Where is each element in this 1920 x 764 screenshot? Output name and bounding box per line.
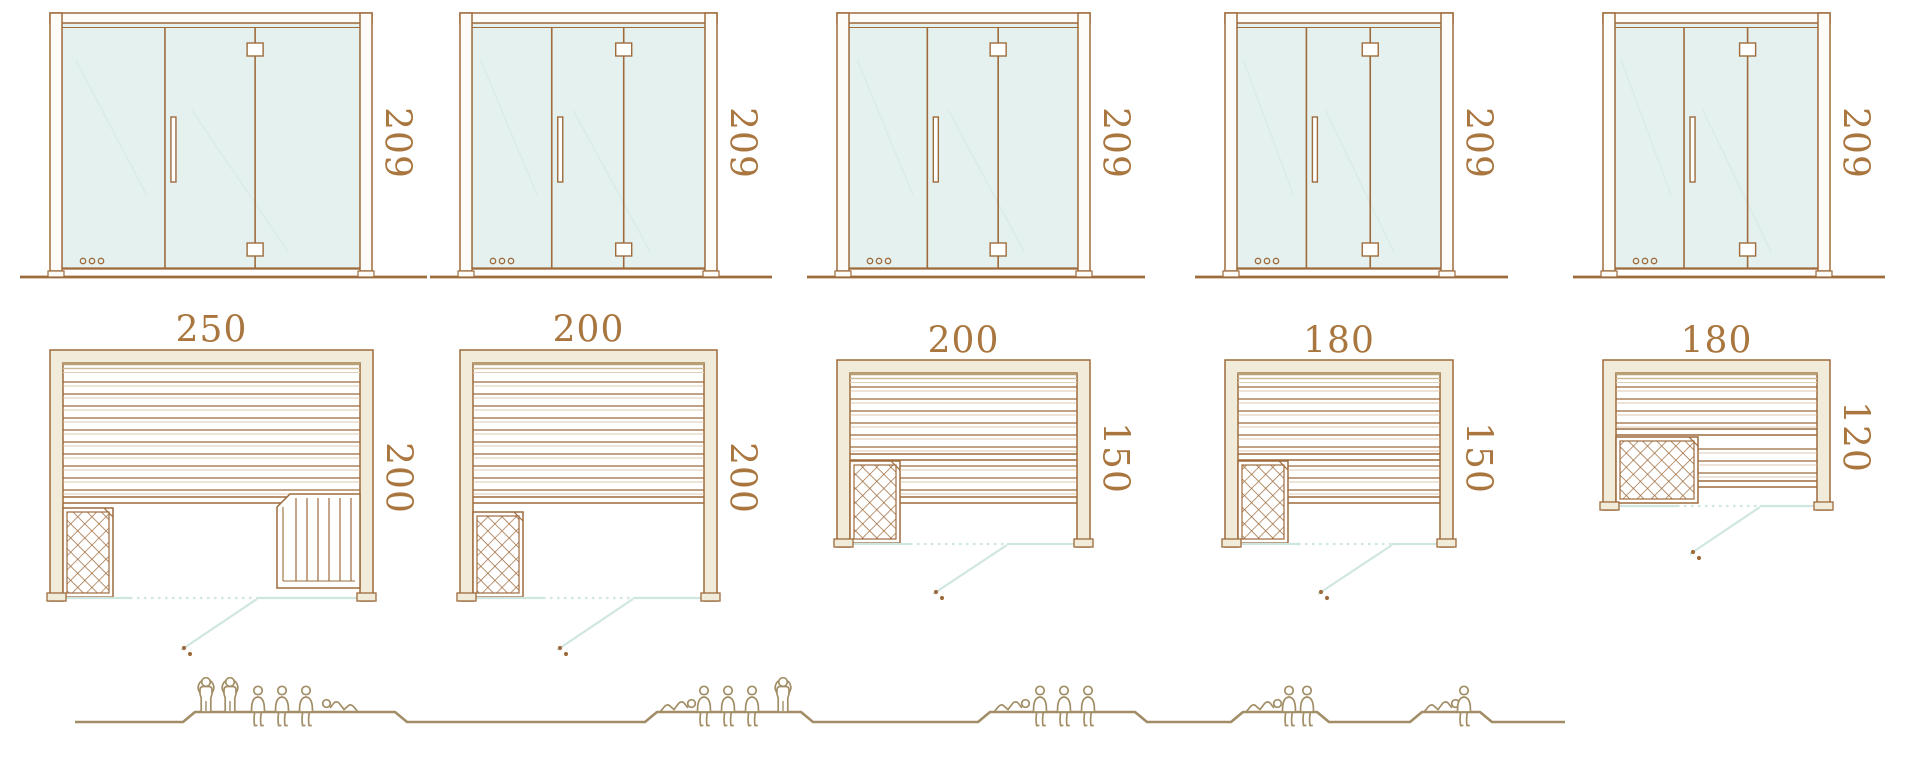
- wall-foot: [1074, 539, 1093, 547]
- floor-plan: 180120: [1600, 321, 1876, 561]
- person-standing-icon: [198, 678, 214, 712]
- frame-foot: [48, 271, 64, 277]
- door-hinge: [1740, 243, 1756, 256]
- door-hinge: [616, 243, 632, 256]
- plan-width-label: 200: [553, 310, 625, 351]
- glass-front: [1238, 544, 1440, 600]
- heater: [850, 461, 900, 543]
- door-handle: [558, 117, 563, 182]
- door-frame-right: [1818, 13, 1830, 271]
- sauna-250x200: 209250200: [20, 13, 427, 656]
- heater: [63, 508, 113, 597]
- wall-foot: [457, 593, 476, 601]
- door-frame-left: [460, 13, 472, 271]
- person-sitting-icon: [698, 686, 711, 725]
- glass-front: [473, 598, 704, 656]
- glass-front: [850, 544, 1077, 600]
- glass-panel: [1237, 23, 1441, 269]
- door-hinge: [1740, 43, 1756, 56]
- capacity-group: [198, 678, 358, 726]
- heater: [1616, 437, 1698, 503]
- plan-depth-label: 150: [1095, 422, 1136, 494]
- door-frame-right: [705, 13, 717, 271]
- capacity-group: [660, 678, 791, 726]
- door-frame-right: [360, 13, 372, 271]
- door-handle-dot: [188, 652, 192, 656]
- door-hinge: [247, 243, 263, 256]
- diagram-canvas: 2092502002092002002092001502091801502091…: [0, 0, 1920, 764]
- floor-plan: 200200: [457, 310, 763, 657]
- door-elevation: 209: [1195, 13, 1508, 277]
- capacity-group: [1424, 686, 1470, 725]
- glass-panel: [849, 23, 1078, 269]
- wall-foot: [1437, 539, 1456, 547]
- plan-depth-label: 200: [722, 442, 763, 514]
- door-frame-top: [50, 13, 372, 23]
- door-elevation: 209: [430, 13, 772, 277]
- door-height-label: 209: [722, 107, 763, 179]
- sauna-size-diagram: 2092502002092002002092001502091801502091…: [0, 0, 1920, 764]
- door-hinge: [247, 43, 263, 56]
- capacity-group: [1246, 686, 1313, 725]
- sauna-200x200: 209200200: [430, 13, 772, 656]
- door-hinge: [990, 243, 1006, 256]
- wall-foot: [834, 539, 853, 547]
- door-frame-left: [837, 13, 849, 271]
- door-elevation: 209: [1573, 13, 1885, 277]
- frame-foot: [1601, 271, 1617, 277]
- sauna-180x150: 209180150: [1195, 13, 1508, 600]
- person-sitting-icon: [722, 686, 735, 725]
- person-lying-icon: [660, 700, 695, 712]
- capacity-ground-line: [75, 712, 1565, 722]
- door-swing-line: [1318, 545, 1392, 594]
- door-handle-dot: [182, 646, 186, 650]
- frame-foot: [358, 271, 374, 277]
- door-handle: [933, 117, 938, 182]
- door-height-label: 209: [1458, 107, 1499, 179]
- door-height-label: 209: [1835, 107, 1876, 179]
- door-frame-left: [50, 13, 62, 271]
- glass-panel: [1615, 23, 1818, 269]
- lower-bench: [900, 466, 1077, 503]
- floor-plan: 180150: [1222, 321, 1499, 601]
- capacity-row: [75, 678, 1565, 726]
- plan-width-label: 250: [176, 310, 248, 351]
- door-handle-dot: [1697, 556, 1701, 560]
- door-handle: [1690, 117, 1695, 182]
- person-sitting-icon: [1458, 686, 1471, 725]
- heater: [1238, 461, 1288, 543]
- door-elevation: 209: [807, 13, 1145, 277]
- door-handle-dot: [1691, 550, 1695, 554]
- door-frame-top: [1603, 13, 1830, 23]
- upper-bench: [1238, 387, 1440, 451]
- glass-front: [63, 598, 360, 656]
- door-height-label: 209: [1095, 107, 1136, 179]
- door-handle-dot: [1319, 590, 1323, 594]
- glass-panel: [62, 23, 360, 269]
- frame-foot: [458, 271, 474, 277]
- glass-panel: [472, 23, 705, 269]
- frame-foot: [1439, 271, 1455, 277]
- door-handle: [1312, 117, 1317, 182]
- wall-foot: [1814, 502, 1833, 510]
- wall-foot: [701, 593, 720, 601]
- door-frame-right: [1441, 13, 1453, 271]
- person-sitting-icon: [746, 686, 759, 725]
- sauna-180x120: 209180120: [1573, 13, 1885, 560]
- plan-depth-label: 200: [378, 442, 419, 514]
- person-lying-icon: [323, 700, 358, 712]
- door-frame-top: [1225, 13, 1453, 23]
- frame-foot: [835, 271, 851, 277]
- door-frame-left: [1225, 13, 1237, 271]
- side-bench: [277, 494, 360, 588]
- person-standing-icon: [222, 678, 238, 712]
- person-lying-icon: [1424, 700, 1459, 712]
- person-sitting-icon: [1058, 686, 1071, 725]
- door-height-label: 209: [377, 107, 418, 179]
- person-sitting-icon: [1082, 686, 1095, 725]
- door-hinge: [990, 43, 1006, 56]
- frame-foot: [703, 271, 719, 277]
- floor-plan: 200150: [834, 321, 1136, 601]
- door-frame-top: [460, 13, 717, 23]
- upper-bench: [1616, 387, 1817, 427]
- plan-depth-label: 150: [1458, 422, 1499, 494]
- person-sitting-icon: [252, 686, 265, 725]
- frame-foot: [1816, 271, 1832, 277]
- door-handle-dot: [558, 646, 562, 650]
- upper-bench: [473, 382, 704, 494]
- plan-width-label: 180: [1681, 321, 1753, 362]
- person-sitting-icon: [1283, 686, 1296, 725]
- door-hinge: [1362, 243, 1378, 256]
- door-frame-right: [1078, 13, 1090, 271]
- wall-foot: [47, 593, 66, 601]
- upper-bench: [850, 387, 1077, 451]
- person-sitting-icon: [1301, 686, 1314, 725]
- heater: [473, 512, 523, 597]
- upper-bench: [63, 382, 360, 494]
- lower-bench: [1288, 466, 1440, 503]
- door-handle-dot: [564, 652, 568, 656]
- person-sitting-icon: [1034, 686, 1047, 725]
- plan-width-label: 180: [1303, 321, 1375, 362]
- door-handle: [171, 117, 176, 182]
- door-handle-dot: [1325, 596, 1329, 600]
- frame-foot: [1223, 271, 1239, 277]
- plan-depth-label: 120: [1835, 401, 1876, 473]
- door-swing-line: [557, 599, 633, 650]
- person-lying-icon: [1246, 700, 1281, 712]
- wall-foot: [357, 593, 376, 601]
- door-swing-line: [1690, 507, 1760, 554]
- plan-width-label: 200: [928, 321, 1000, 362]
- sauna-200x150: 209200150: [807, 13, 1145, 600]
- capacity-group: [994, 686, 1094, 725]
- frame-foot: [1076, 271, 1092, 277]
- door-swing-line: [933, 545, 1007, 594]
- door-elevation: 209: [20, 13, 427, 277]
- wall-foot: [1222, 539, 1241, 547]
- door-swing-line: [181, 599, 257, 650]
- wall-foot: [1600, 502, 1619, 510]
- door-frame-top: [837, 13, 1090, 23]
- person-standing-icon: [775, 678, 791, 712]
- person-sitting-icon: [300, 686, 313, 725]
- door-handle-dot: [940, 596, 944, 600]
- door-frame-left: [1603, 13, 1615, 271]
- door-hinge: [1362, 43, 1378, 56]
- person-lying-icon: [994, 700, 1029, 712]
- glass-front: [1616, 506, 1817, 560]
- lower-bench: [1698, 449, 1817, 487]
- person-sitting-icon: [276, 686, 289, 725]
- door-handle-dot: [934, 590, 938, 594]
- floor-plan: 250200: [47, 310, 419, 657]
- door-hinge: [616, 43, 632, 56]
